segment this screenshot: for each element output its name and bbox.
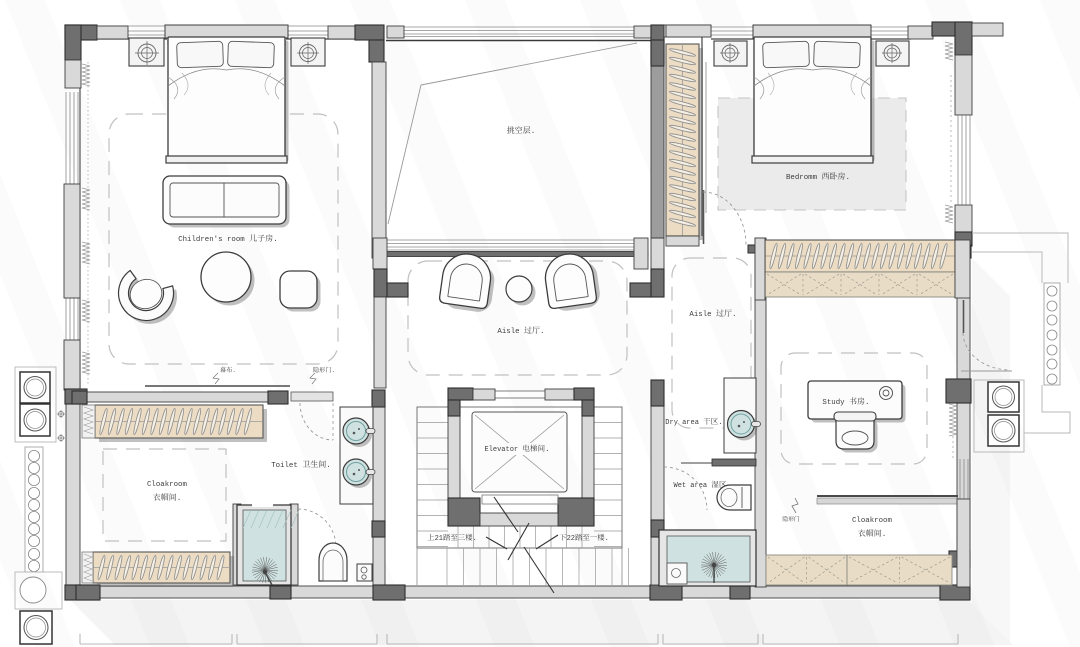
svg-text:.: .: [326, 462, 331, 470]
svg-text:.: .: [232, 367, 236, 374]
svg-text:.: .: [718, 419, 722, 427]
svg-text:.: .: [605, 535, 609, 543]
svg-text:.: .: [865, 399, 870, 407]
svg-text:Cloakroom: Cloakroom: [852, 517, 892, 525]
svg-text:.: .: [332, 367, 336, 374]
svg-text:.: .: [473, 535, 477, 543]
svg-text:Bedromm: Bedromm: [786, 174, 818, 182]
svg-text:Dry area: Dry area: [665, 419, 699, 427]
svg-text:Aisle: Aisle: [689, 311, 711, 319]
svg-text:.: .: [846, 174, 851, 182]
svg-text:Children's room: Children's room: [178, 236, 245, 244]
svg-text:Study: Study: [822, 399, 845, 407]
svg-text:.: .: [540, 328, 545, 336]
svg-text:Wet area: Wet area: [674, 482, 708, 490]
svg-text:.: .: [732, 311, 737, 319]
svg-text:.: .: [531, 128, 536, 136]
svg-text:21: 21: [435, 535, 443, 543]
svg-text:.: .: [177, 495, 182, 503]
svg-text:.: .: [273, 236, 278, 244]
svg-text:Elevator: Elevator: [485, 446, 519, 454]
svg-text:Cloakroom: Cloakroom: [147, 481, 187, 489]
svg-text:Toilet: Toilet: [271, 462, 298, 470]
svg-text:.: .: [545, 446, 549, 454]
svg-text:22: 22: [567, 535, 575, 543]
svg-text:.: .: [882, 531, 887, 539]
svg-text:Aisle: Aisle: [497, 328, 519, 336]
